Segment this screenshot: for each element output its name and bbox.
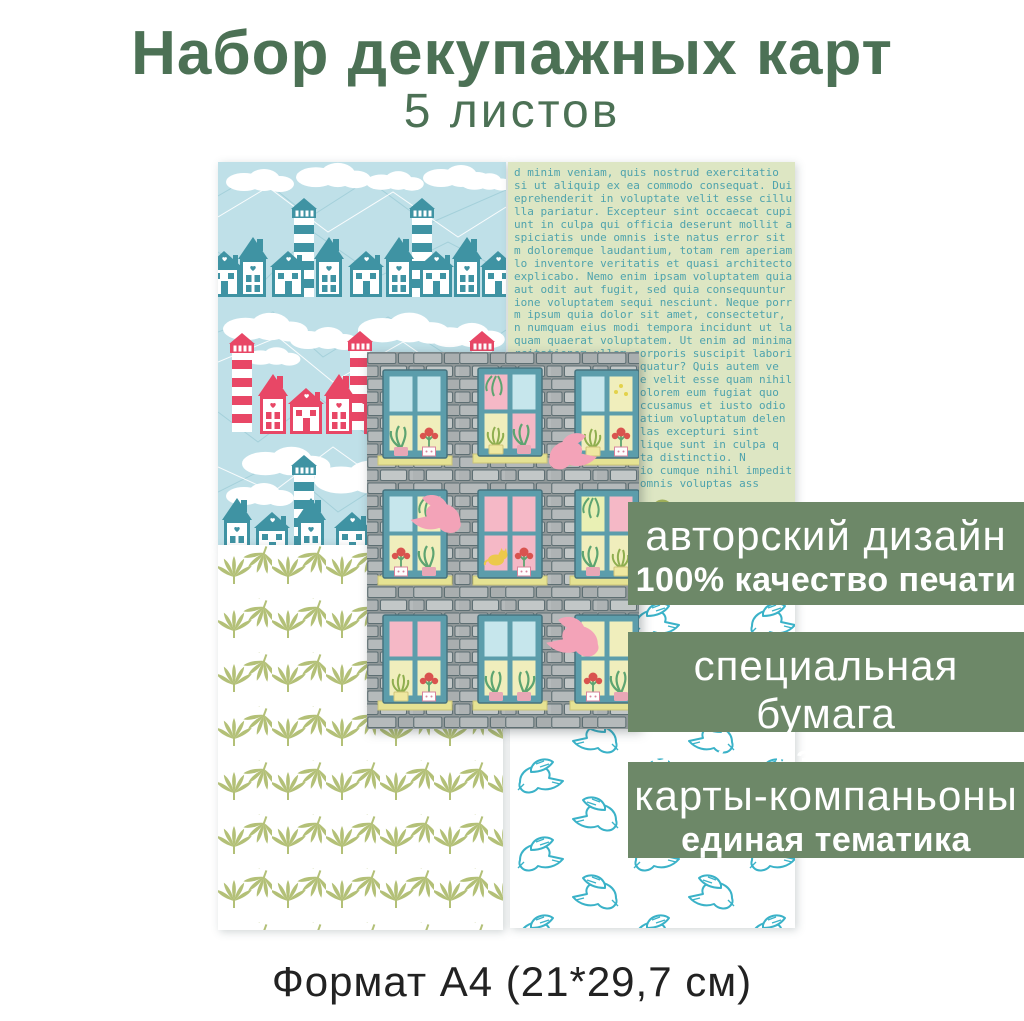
window [378,370,452,465]
page-title: Набор декупажных карт [0,18,1024,89]
banner-line: авторский дизайн [628,512,1024,560]
feature-banner-companions: карты-компаньоны единая тематика [628,762,1024,858]
lighthouse-icon [229,333,255,432]
feature-banner-design: авторский дизайн 100% качество печати [628,502,1024,605]
banner-line: карты-компаньоны [628,772,1024,820]
clouds-top [226,163,506,192]
page-subtitle: 5 листов [0,84,1024,139]
product-image: Набор декупажных карт 5 листов [0,0,1024,1021]
brick-house-art [367,352,639,729]
format-label: Формат А4 (21*29,7 см) [0,958,1024,1006]
banner-line-bold: 100% качество печати [628,560,1024,600]
window [378,615,452,710]
feature-banner-paper: специальная бумага четкое изображение [628,632,1024,732]
window [473,615,547,710]
banner-line-bold: единая тематика [628,820,1024,860]
window [473,490,547,585]
decoupage-card-brick-house [367,352,639,729]
window [473,368,547,463]
teal-houses-row-1 [218,198,506,297]
banner-line: специальная бумага [628,642,1024,738]
